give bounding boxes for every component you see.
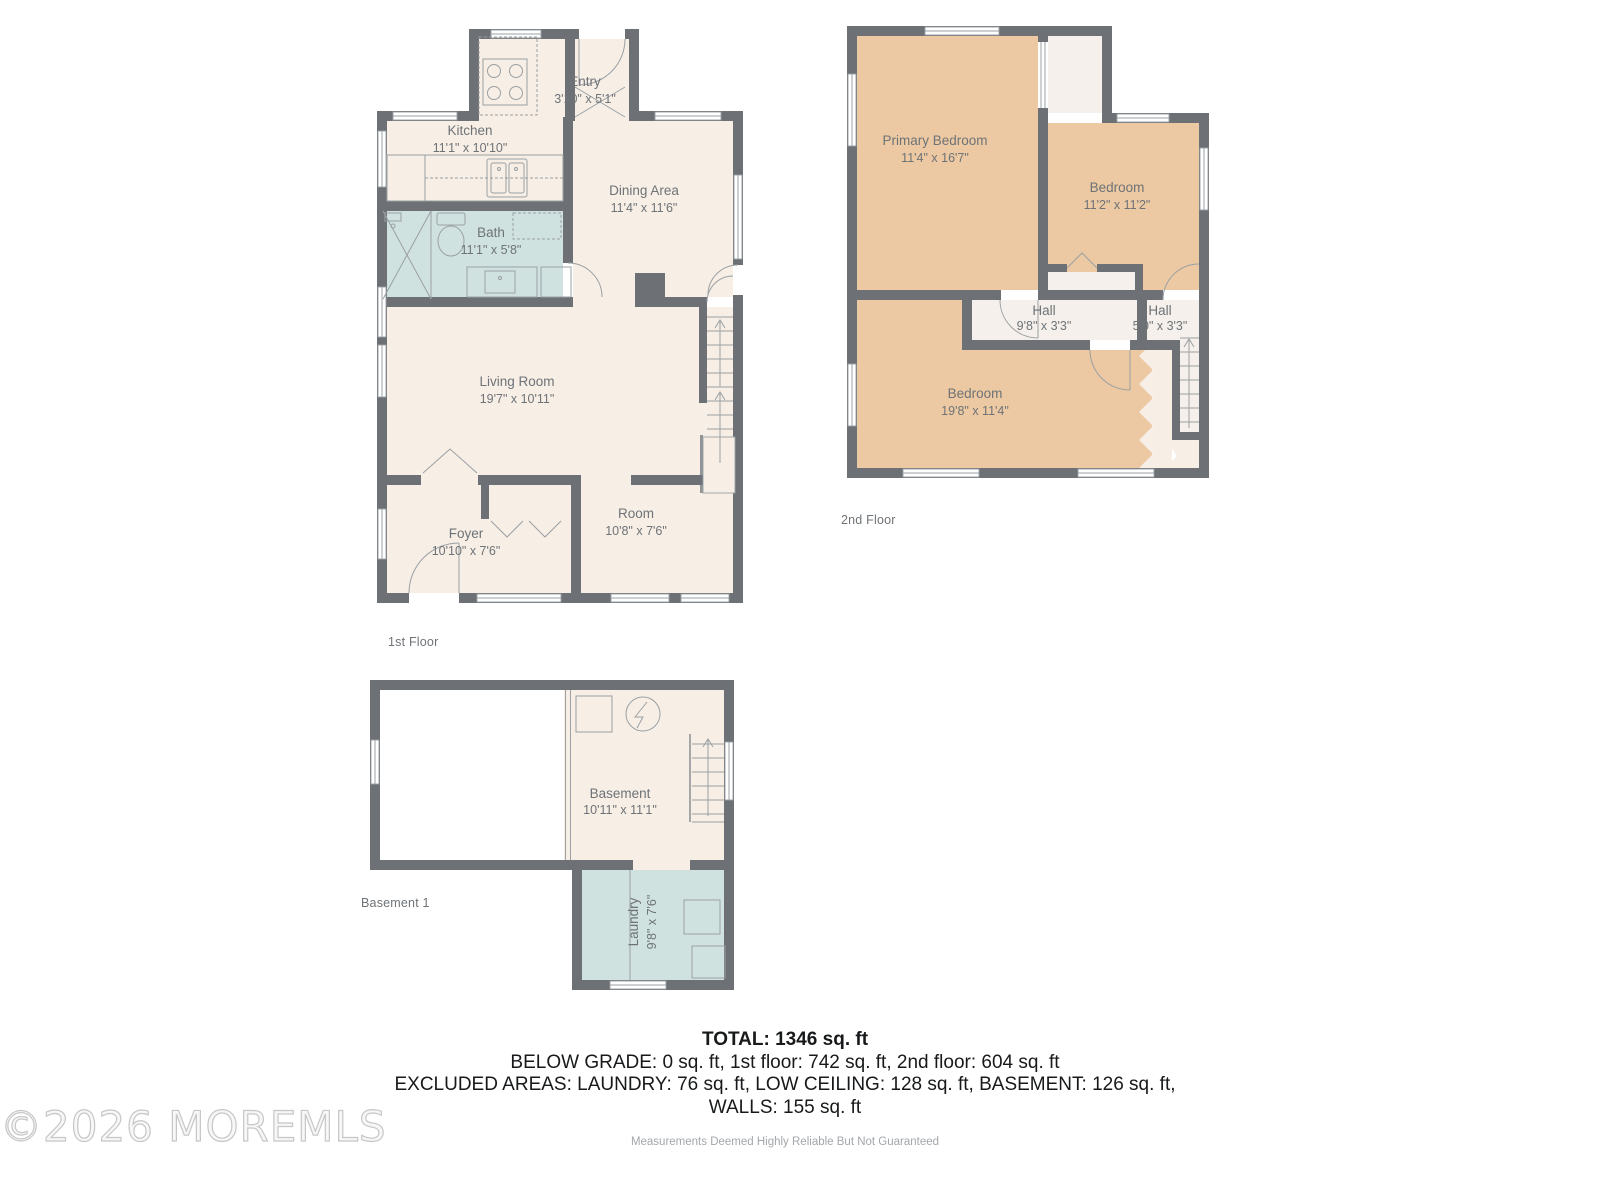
room-label-bedroom2: Bedroom [1090,180,1145,195]
room-label-foyer: Foyer [449,526,484,541]
room-label-primary-bedroom: Primary Bedroom [882,133,987,148]
room-label-dining: Dining Area [609,183,679,198]
summary-excluded-line: EXCLUDED AREAS: LAUNDRY: 76 sq. ft, LOW … [185,1074,1385,1097]
room-dims-basement: 10'11" x 11'1" [583,803,657,817]
floor-caption-second: 2nd Floor [841,513,896,527]
room-label-living: Living Room [479,374,554,389]
summary-grade-line: BELOW GRADE: 0 sq. ft, 1st floor: 742 sq… [185,1052,1385,1075]
room-dims-kitchen: 11'1" x 10'10" [433,141,508,155]
room-label-room: Room [618,506,654,521]
room-dims-bedroom2: 11'2" x 11'2" [1084,198,1151,212]
room-dims-bedroom3: 19'8" x 11'4" [941,404,1009,418]
room-dims-entry: 3'10" x 5'1" [554,92,616,106]
room-label-laundry: Laundry [626,897,641,946]
room-label-kitchen: Kitchen [447,123,492,138]
room-label-hall1: Hall [1032,303,1055,318]
room-dims-bath: 11'1" x 5'8" [461,243,522,257]
room-label-bedroom3: Bedroom [948,386,1003,401]
room-dims-primary-bedroom: 11'4" x 16'7" [901,151,969,165]
floor-plan-first: Kitchen 11'1" x 10'10" Entry 3'10" x 5'1… [373,25,747,605]
room-dims-room: 10'8" x 7'6" [605,524,667,538]
room-label-bath: Bath [477,225,505,240]
room-dims-laundry: 9'8" x 7'6" [645,895,659,950]
room-label-hall2: Hall [1148,303,1171,318]
floor-caption-basement: Basement 1 [361,896,430,910]
floor-caption-first: 1st Floor [388,635,438,649]
room-dims-hall2: 5'0" x 3'3" [1133,319,1188,333]
room-dims-hall1: 9'8" x 3'3" [1017,319,1072,333]
room-dims-dining: 11'4" x 11'6" [611,201,678,215]
basement-room-fills [380,690,725,980]
floor-plan-second: Primary Bedroom 11'4" x 16'7" Bedroom 11… [843,22,1209,482]
room-dims-living: 19'7" x 10'11" [480,392,555,406]
summary-total: TOTAL: 1346 sq. ft [185,1029,1385,1052]
mls-watermark: ©2026 MOREMLS [0,1102,387,1151]
room-dims-foyer: 10'10" x 7'6" [432,544,501,558]
room-label-entry: Entry [569,74,601,89]
chimney [635,273,665,307]
second-floor-room-fills [857,36,1199,468]
floor-plan-basement: Basement 10'11" x 11'1" Laundry 9'8" x 7… [362,664,742,998]
room-label-basement: Basement [590,786,651,801]
